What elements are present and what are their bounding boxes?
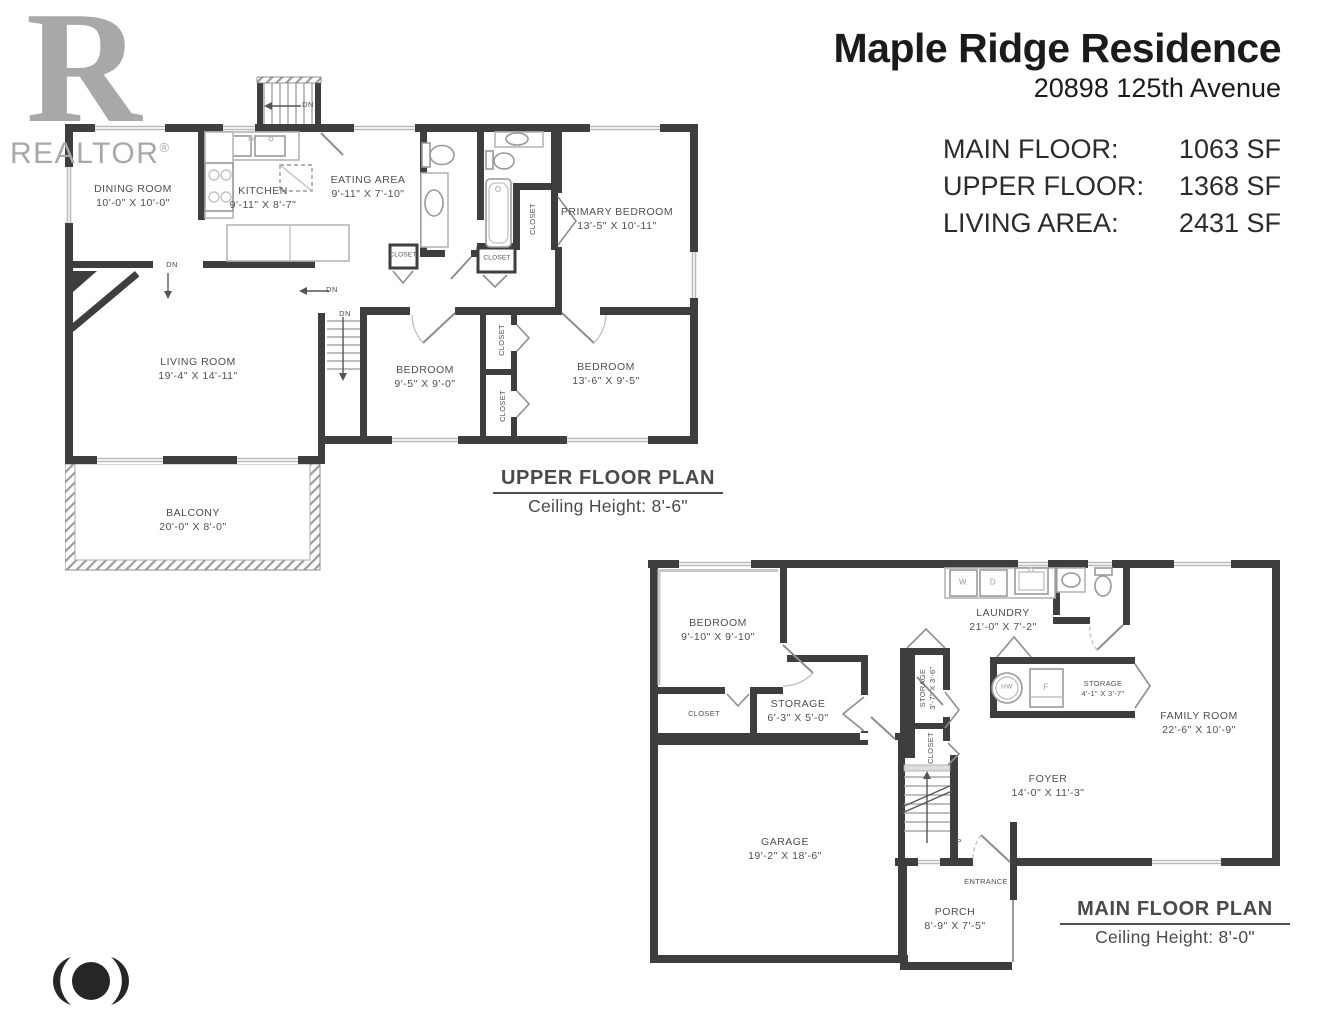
- upper-stairs-down: [327, 317, 360, 381]
- washer-label: W: [959, 578, 967, 589]
- room-label-eating-area: EATING AREA9'-11" X 7'-10": [331, 174, 406, 202]
- entrance-label: ENTRANCE: [964, 877, 1008, 887]
- kitchen-island: [227, 225, 349, 261]
- closet-label: CLOSET: [497, 324, 507, 356]
- closet-label: CLOSET: [688, 709, 720, 719]
- room-label-living-room: LIVING ROOM19'-4" X 14'-11": [158, 356, 237, 384]
- closet-label: CLOSET: [528, 203, 538, 235]
- stairs-dn-label: DN: [302, 100, 314, 110]
- upper-floor-caption: UPPER FLOOR PLAN Ceiling Height: 8'-6": [493, 467, 723, 517]
- room-label-family-room: FAMILY ROOM22'-6" X 10'-9": [1160, 710, 1237, 738]
- floorplan-page: R REALTOR® Maple Ridge Residence 20898 1…: [0, 0, 1328, 1026]
- sink-icon: [425, 190, 443, 216]
- room-label-bedroom-1: BEDROOM9'-5" X 9'-0": [394, 364, 455, 392]
- stat-upper-floor: UPPER FLOOR:1368 SF: [943, 168, 1281, 205]
- bathtub-icon: [486, 179, 511, 247]
- room-label-storage-mid: STORAGE6'-3" X 5'-0": [767, 698, 828, 726]
- realtor-logo: R REALTOR®: [10, 2, 171, 171]
- realtor-r-icon: R: [26, 2, 171, 133]
- room-label-kitchen: KITCHEN9'-11" X 8'-7": [230, 185, 297, 213]
- closet-label: CLOSET: [926, 732, 936, 764]
- toilet-icon: [486, 151, 514, 169]
- main-floor-caption: MAIN FLOOR PLAN Ceiling Height: 8'-0": [1060, 898, 1290, 948]
- room-label-laundry: LAUNDRY21'-0" X 7'-2": [969, 607, 1037, 635]
- upper-ceiling-height: Ceiling Height: 8'-6": [493, 496, 723, 517]
- hot-water-label: HW: [1001, 684, 1013, 693]
- stat-living-area: LIVING AREA:2431 SF: [943, 205, 1281, 242]
- address: 20898 125th Avenue: [834, 73, 1281, 104]
- room-label-foyer: FOYER14'-0" X 11'-3": [1011, 773, 1084, 801]
- room-label-porch: PORCH8'-9" X 7'-5": [924, 906, 985, 934]
- room-label-storage-right: STORAGE4'-1" X 3'-7": [1082, 679, 1125, 699]
- sink-icon: [1062, 573, 1080, 587]
- dryer-label: D: [990, 578, 996, 589]
- toilet-icon: [1095, 568, 1112, 596]
- area-stats: MAIN FLOOR:1063 SF UPPER FLOOR:1368 SF L…: [943, 131, 1281, 242]
- room-label-bedroom: BEDROOM9'-10" X 9'-10": [681, 617, 755, 645]
- stairs-up-label: UP: [950, 837, 961, 847]
- laundry-sink-icon: [1015, 568, 1048, 594]
- page-title: Maple Ridge Residence: [834, 26, 1281, 71]
- room-label-balcony: BALCONY20'-0" X 8'-0": [159, 507, 227, 535]
- closet-label: CLOSET: [498, 390, 508, 422]
- main-ceiling-height: Ceiling Height: 8'-0": [1060, 927, 1290, 948]
- stairs-dn-label: DN: [166, 260, 178, 270]
- room-label-dining-room: DINING ROOM10'-0" X 10'-0": [94, 183, 172, 211]
- sink-icon: [506, 133, 528, 145]
- camera-logo-icon: [45, 955, 137, 1009]
- stairs-dn-label: DN: [326, 285, 338, 295]
- room-label-bedroom-2: BEDROOM13'-6" X 9'-5": [572, 361, 640, 389]
- realtor-wordmark: REALTOR®: [10, 137, 171, 171]
- main-plan-title: MAIN FLOOR PLAN: [1060, 898, 1290, 925]
- header: Maple Ridge Residence 20898 125th Avenue…: [834, 26, 1281, 242]
- closet-label: CLOSET: [483, 255, 510, 264]
- closet-label: CLOSET: [389, 252, 416, 261]
- room-label-storage-small: STORAGE3'-7" X 3'-6": [918, 667, 938, 710]
- main-stairs-up: [902, 765, 952, 843]
- stat-main-floor: MAIN FLOOR:1063 SF: [943, 131, 1281, 168]
- registered-mark: ®: [159, 140, 170, 155]
- stairs-dn-label: DN: [339, 309, 351, 319]
- room-label-primary-bedroom: PRIMARY BEDROOM13'-5" X 10'-11": [561, 206, 673, 234]
- laundry-fixtures: [945, 568, 1112, 598]
- furnace-label: F: [1043, 683, 1048, 694]
- toilet-icon: [422, 143, 454, 167]
- room-label-garage: GARAGE19'-2" X 18'-6": [748, 836, 822, 864]
- upper-plan-title: UPPER FLOOR PLAN: [493, 467, 723, 494]
